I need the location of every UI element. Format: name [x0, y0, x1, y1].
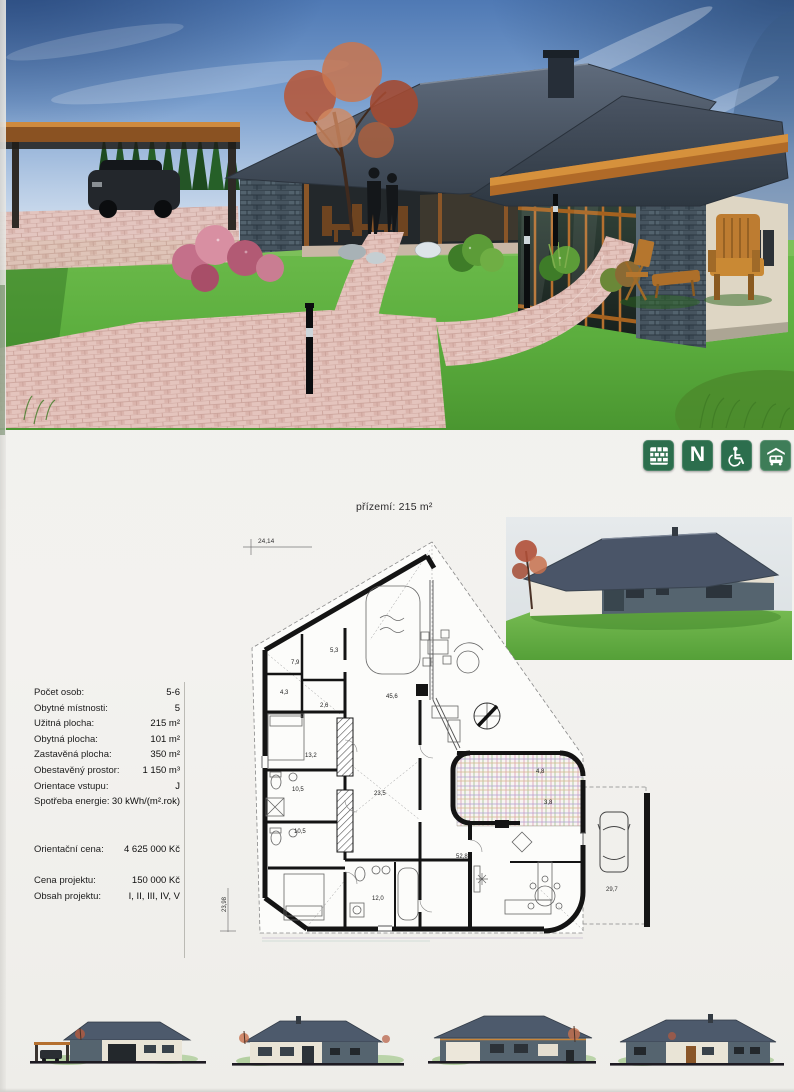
- spec-label: Obestavěný prostor:: [34, 763, 120, 779]
- spec-value: 30 kWh/(m².rok): [112, 794, 180, 810]
- wardrobe-hatch: [337, 790, 353, 852]
- room-area-label: 7,9: [291, 660, 300, 666]
- elevation-northeast: [426, 1002, 598, 1074]
- spec-value: 4 625 000 Kč: [124, 842, 180, 858]
- spec-row: Obytná plocha:101 m²: [34, 732, 180, 748]
- vertical-divider: [184, 682, 185, 958]
- scan-bottom-edge: [0, 1088, 794, 1092]
- room-area-label: 10,5: [292, 787, 304, 793]
- spec-row: Obestavěný prostor:1 150 m³: [34, 763, 180, 779]
- letter-n-label: N: [690, 444, 705, 465]
- hero-photo: [0, 0, 794, 430]
- spec-label: Obsah projektu:: [34, 889, 101, 905]
- floor-plan-title: přízemí: 215 m²: [356, 501, 433, 513]
- spec-value: I, II, III, IV, V: [129, 889, 180, 905]
- car-outline: [598, 812, 630, 872]
- floor-plan-drawing: 24,14 23,98 29,7: [210, 520, 665, 970]
- dimension-width: [243, 539, 312, 555]
- chimney: [548, 54, 574, 98]
- spec-value: 1 150 m³: [143, 763, 181, 779]
- dim-width-label: 24,14: [258, 538, 275, 545]
- spec-label: Počet osob:: [34, 685, 84, 701]
- dim-parking-label: 29,7: [606, 887, 618, 893]
- elevation-northwest: [230, 1004, 406, 1076]
- elevation-southwest: [28, 1002, 208, 1074]
- room-area-label: 45,6: [386, 694, 398, 700]
- room-area-label: 2,6: [320, 703, 329, 709]
- spec-value: 5-6: [166, 685, 180, 701]
- room-area-label: 23,5: [374, 791, 386, 797]
- terrace: [457, 753, 583, 826]
- spec-label: Spotřeba energie:: [34, 794, 110, 810]
- catalog-page: N přízemí: 215 m²: [0, 0, 794, 1092]
- brick-icon: [643, 440, 674, 471]
- spec-value: J: [175, 779, 180, 795]
- scan-edge: [0, 0, 6, 1092]
- elevation-southeast: [608, 1004, 786, 1076]
- spec-value: 215 m²: [150, 716, 180, 732]
- price-row: Orientační cena:4 625 000 Kč: [34, 842, 180, 858]
- spec-row: Cena projektu:150 000 Kč: [34, 873, 180, 889]
- feature-icons: N: [643, 440, 791, 471]
- spec-row: Obytné místnosti:5: [34, 701, 180, 717]
- room-area-label: 52,8: [456, 854, 468, 860]
- room-area-label: 3,8: [544, 800, 553, 806]
- compass-icon: [474, 703, 500, 729]
- spec-row: Zastavěná plocha:350 m²: [34, 747, 180, 763]
- room-area-label: 4,8: [536, 769, 545, 775]
- room-area-label: 5,3: [330, 648, 339, 654]
- parking-zone: 29,7: [583, 787, 650, 927]
- spec-value: 101 m²: [150, 732, 180, 748]
- spec-row: Obsah projektu:I, II, III, IV, V: [34, 889, 180, 905]
- spec-row: Spotřeba energie:30 kWh/(m².rok): [34, 794, 180, 810]
- room-area-label: 13,2: [305, 753, 317, 759]
- spec-label: Užitná plocha:: [34, 716, 94, 732]
- spec-label: Cena projektu:: [34, 873, 96, 889]
- wardrobe-hatch: [337, 718, 353, 776]
- spec-label: Orientační cena:: [34, 842, 104, 858]
- spec-row: Počet osob:5-6: [34, 685, 180, 701]
- room-area-label: 12,0: [372, 896, 384, 902]
- spec-value: 5: [175, 701, 180, 717]
- room-area-label: 10,5: [294, 829, 306, 835]
- spec-row: Orientace vstupu:J: [34, 779, 180, 795]
- spec-label: Orientace vstupu:: [34, 779, 108, 795]
- dim-height-label: 23,98: [222, 896, 228, 912]
- spec-label: Zastavěná plocha:: [34, 747, 112, 763]
- spec-value: 150 000 Kč: [132, 873, 180, 889]
- spec-value: 350 m²: [150, 747, 180, 763]
- spec-list: Počet osob:5-6 Obytné místnosti:5 Užitná…: [34, 685, 180, 905]
- spec-row: Užitná plocha:215 m²: [34, 716, 180, 732]
- wheelchair-icon: [721, 440, 752, 471]
- spec-label: Obytná plocha:: [34, 732, 98, 748]
- garage-icon: [760, 440, 791, 471]
- letter-n-icon: N: [682, 440, 713, 471]
- spec-label: Obytné místnosti:: [34, 701, 108, 717]
- room-area-label: 4,3: [280, 690, 289, 696]
